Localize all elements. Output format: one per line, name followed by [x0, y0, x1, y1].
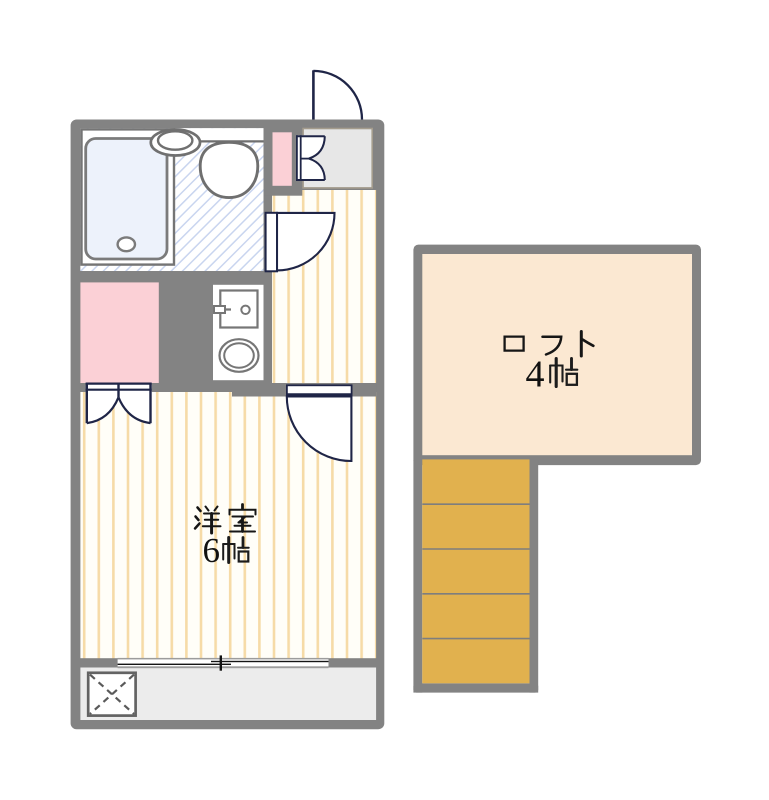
- svg-text:4: 4: [526, 354, 545, 396]
- svg-text:6: 6: [203, 531, 221, 570]
